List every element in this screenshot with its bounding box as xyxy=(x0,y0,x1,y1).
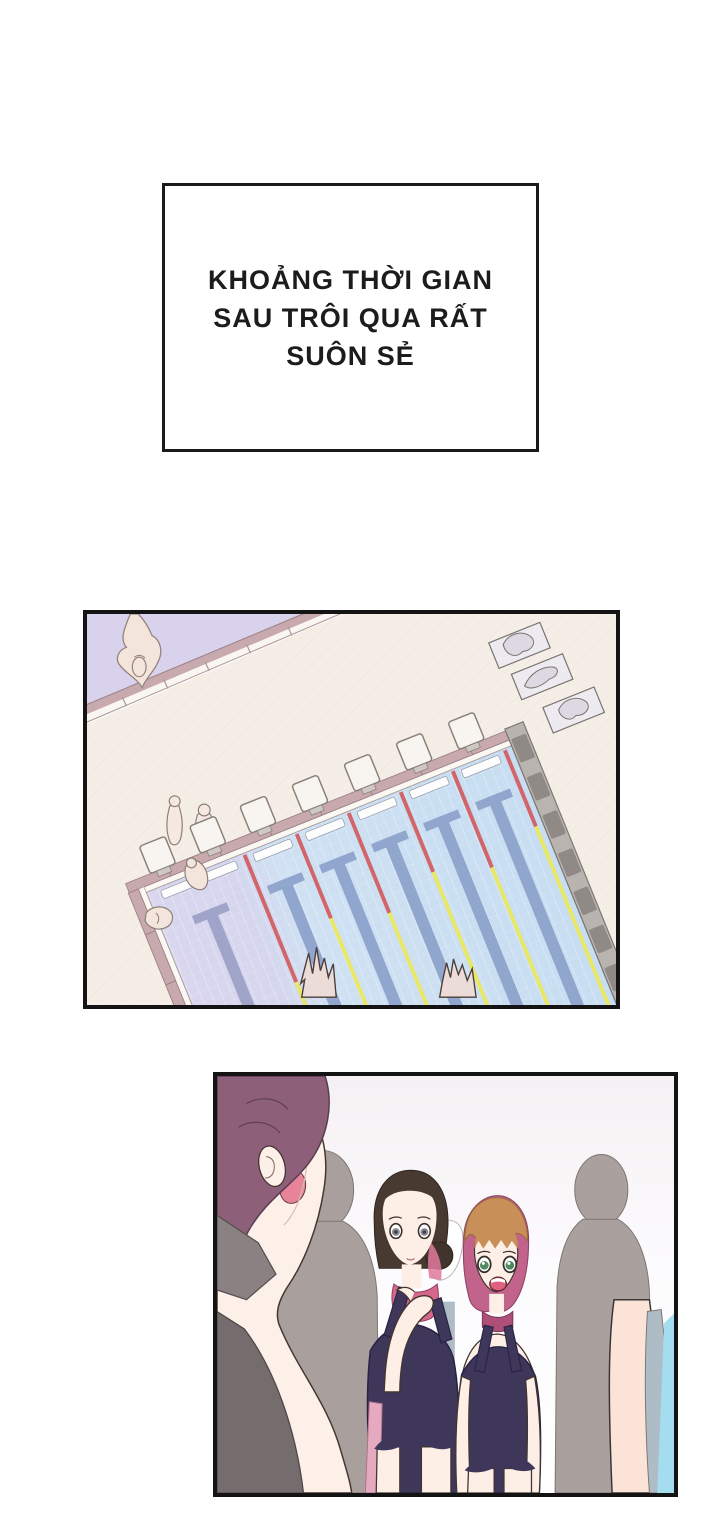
bun-girl-leg-right xyxy=(421,1447,450,1493)
bun-girl-leg-left xyxy=(376,1447,400,1493)
deck-figure-1 xyxy=(167,796,182,845)
pool-corner-figure xyxy=(145,907,172,929)
caption-line-3: SUÔN SẺ xyxy=(286,337,415,375)
swimmers-scene-panel xyxy=(213,1072,678,1497)
caption-line-2: SAU TRÔI QUA RẤT xyxy=(213,299,488,337)
comic-page: KHOẢNG THỜI GIAN SAU TRÔI QUA RẤT SUÔN S… xyxy=(0,0,720,1538)
caption-box: KHOẢNG THỜI GIAN SAU TRÔI QUA RẤT SUÔN S… xyxy=(162,183,539,452)
caption-line-1: KHOẢNG THỜI GIAN xyxy=(208,261,493,299)
orange-girl-mouth xyxy=(490,1277,507,1291)
swimmers-scene-art xyxy=(217,1076,674,1493)
pool-scene-art xyxy=(87,614,616,1005)
pool-scene-panel xyxy=(83,610,620,1009)
